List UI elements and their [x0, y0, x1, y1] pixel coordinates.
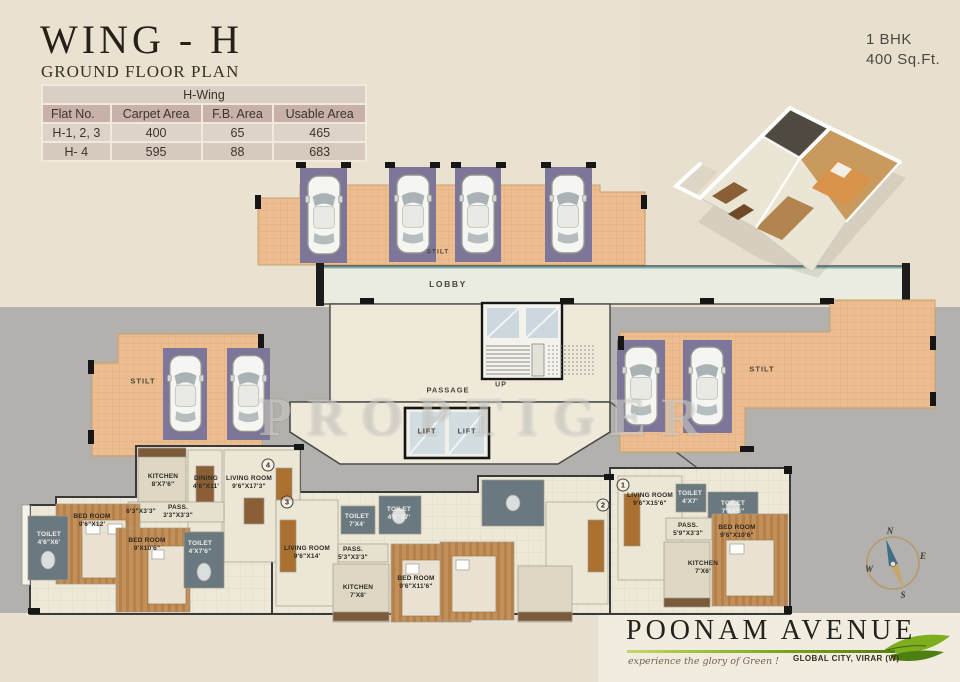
col-carpet: Carpet Area: [111, 104, 202, 123]
room-label-f4-living: LIVING ROOM9'6"X17'3": [226, 475, 272, 491]
stilt-left-label: STILT: [130, 377, 155, 386]
stilt-right-label: STILT: [749, 365, 774, 374]
table-row: H- 4 595 88 683: [42, 142, 366, 161]
room-label-f1-bed: BED ROOM9'6"X10'6": [718, 524, 755, 540]
brand-underline: [627, 650, 895, 653]
room-label-f3-kitchen: KITCHEN7'X8': [343, 584, 373, 600]
unit-area: 400 Sq.Ft.: [866, 50, 940, 70]
compass-east-label: E: [920, 551, 926, 561]
room-label-f3-pass: PASS.5'3"X3'3": [338, 546, 368, 562]
compass-west-label: W: [865, 564, 873, 574]
room-label-f1-toilet1: TOILET4'X7': [678, 490, 702, 506]
table-cell: H-1, 2, 3: [42, 123, 111, 142]
watermark: PROPTIGER: [259, 386, 715, 448]
room-label-f3-toilet1: TOILET7'X4': [345, 513, 369, 529]
room-label-f4-toilet2: TOILET4'X7'6": [188, 540, 212, 556]
room-label-f4-pass2: 6'3"X3'3": [126, 508, 156, 516]
table-cell: 595: [111, 142, 202, 161]
table-row: H-1, 2, 3 400 65 465: [42, 123, 366, 142]
page-subtitle: GROUND FLOOR PLAN: [41, 62, 239, 82]
flat-marker-1: 1: [617, 479, 630, 492]
room-label-f4-bed2: BED ROOM9'X10'6": [128, 537, 165, 553]
table-title: H-Wing: [42, 85, 366, 104]
compass-rose-icon: [867, 537, 919, 589]
room-label-f4-bed1: BED ROOM9'6"X12': [73, 513, 110, 529]
up-label: UP: [495, 382, 507, 389]
passage-label: PASSAGE: [426, 386, 469, 395]
lobby-label: LOBBY: [429, 279, 467, 289]
table-cell: 465: [273, 123, 366, 142]
brand-logo-text: POONAM AVENUE: [626, 615, 916, 647]
isometric-3d-unit: [676, 108, 906, 278]
flat-marker-2: 2: [597, 499, 610, 512]
room-label-f1-pass: PASS.5'9"X3'3": [673, 522, 703, 538]
stilt-area-left: [92, 334, 270, 456]
compass-south-label: S: [900, 590, 905, 600]
room-label-f1-toilet2: TOILET7'X4'6": [721, 500, 745, 516]
flat-marker-4: 4: [262, 459, 275, 472]
col-usable: Usable Area: [273, 104, 366, 123]
room-label-f4-kitchen: KITCHEN8'X7'6": [148, 473, 178, 489]
table-cell: 65: [202, 123, 274, 142]
unit-type: 1 BHK: [866, 30, 940, 50]
room-label-f3-living: LIVING ROOM9'6"X14': [284, 545, 330, 561]
table-cell: 683: [273, 142, 366, 161]
flat-marker-3: 3: [281, 496, 294, 509]
table-cell: H- 4: [42, 142, 111, 161]
col-flat-no: Flat No.: [42, 104, 111, 123]
room-label-f3-toilet2: TOILET4'6"X7': [387, 506, 411, 522]
room-label-f4-dining: DINING4'6"X11': [193, 475, 219, 491]
unit-info: 1 BHK 400 Sq.Ft.: [866, 30, 940, 70]
room-label-f4-toilet1: TOILET4'6"X6': [37, 531, 61, 547]
table-cell: 88: [202, 142, 274, 161]
page-title: WING - H: [40, 16, 243, 63]
room-label-f3-bed: BED ROOM9'6"X11'6": [397, 575, 434, 591]
stilt-top-label: STILT: [427, 249, 450, 256]
compass-north-label: N: [887, 526, 894, 536]
room-label-f4-pass1: PASS.3'3"X3'3": [163, 504, 193, 520]
floor-plan-page: PROPTIGER WING - H GROUND FLOOR PLAN 1 B…: [0, 0, 960, 682]
lift1-label: LIFT: [418, 429, 437, 436]
room-label-f1-living: LIVING ROOM9'6"X15'6": [627, 492, 673, 508]
lift2-label: LIFT: [458, 429, 477, 436]
table-cell: 400: [111, 123, 202, 142]
col-fb: F.B. Area: [202, 104, 274, 123]
area-table: H-Wing Flat No. Carpet Area F.B. Area Us…: [41, 84, 367, 162]
room-label-f1-kitchen: KITCHEN7'X6': [688, 560, 718, 576]
brand-tagline: experience the glory of Green !: [628, 656, 779, 667]
brand-location: GLOBAL CITY, VIRAR (W): [793, 654, 899, 663]
